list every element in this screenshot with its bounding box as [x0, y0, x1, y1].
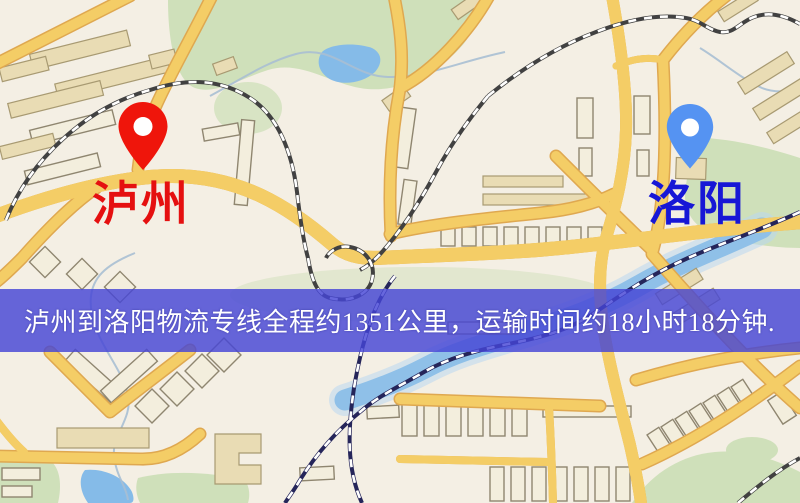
destination-label: 洛阳	[648, 179, 746, 231]
route-info-text: 泸州到洛阳物流专线全程约1351公里，运输时间约18小时18分钟.	[24, 302, 775, 339]
destination-pin-hole	[681, 119, 699, 137]
origin-label: 泸州	[92, 179, 190, 231]
origin-pin-hole	[134, 117, 153, 136]
map-view[interactable]: 泸州 洛阳 泸州到洛阳物流专线全程约1351公里，运输时间约18小时18分钟.	[0, 0, 800, 503]
route-info-banner: 泸州到洛阳物流专线全程约1351公里，运输时间约18小时18分钟.	[0, 289, 800, 352]
map-background: 泸州 洛阳	[0, 0, 800, 503]
